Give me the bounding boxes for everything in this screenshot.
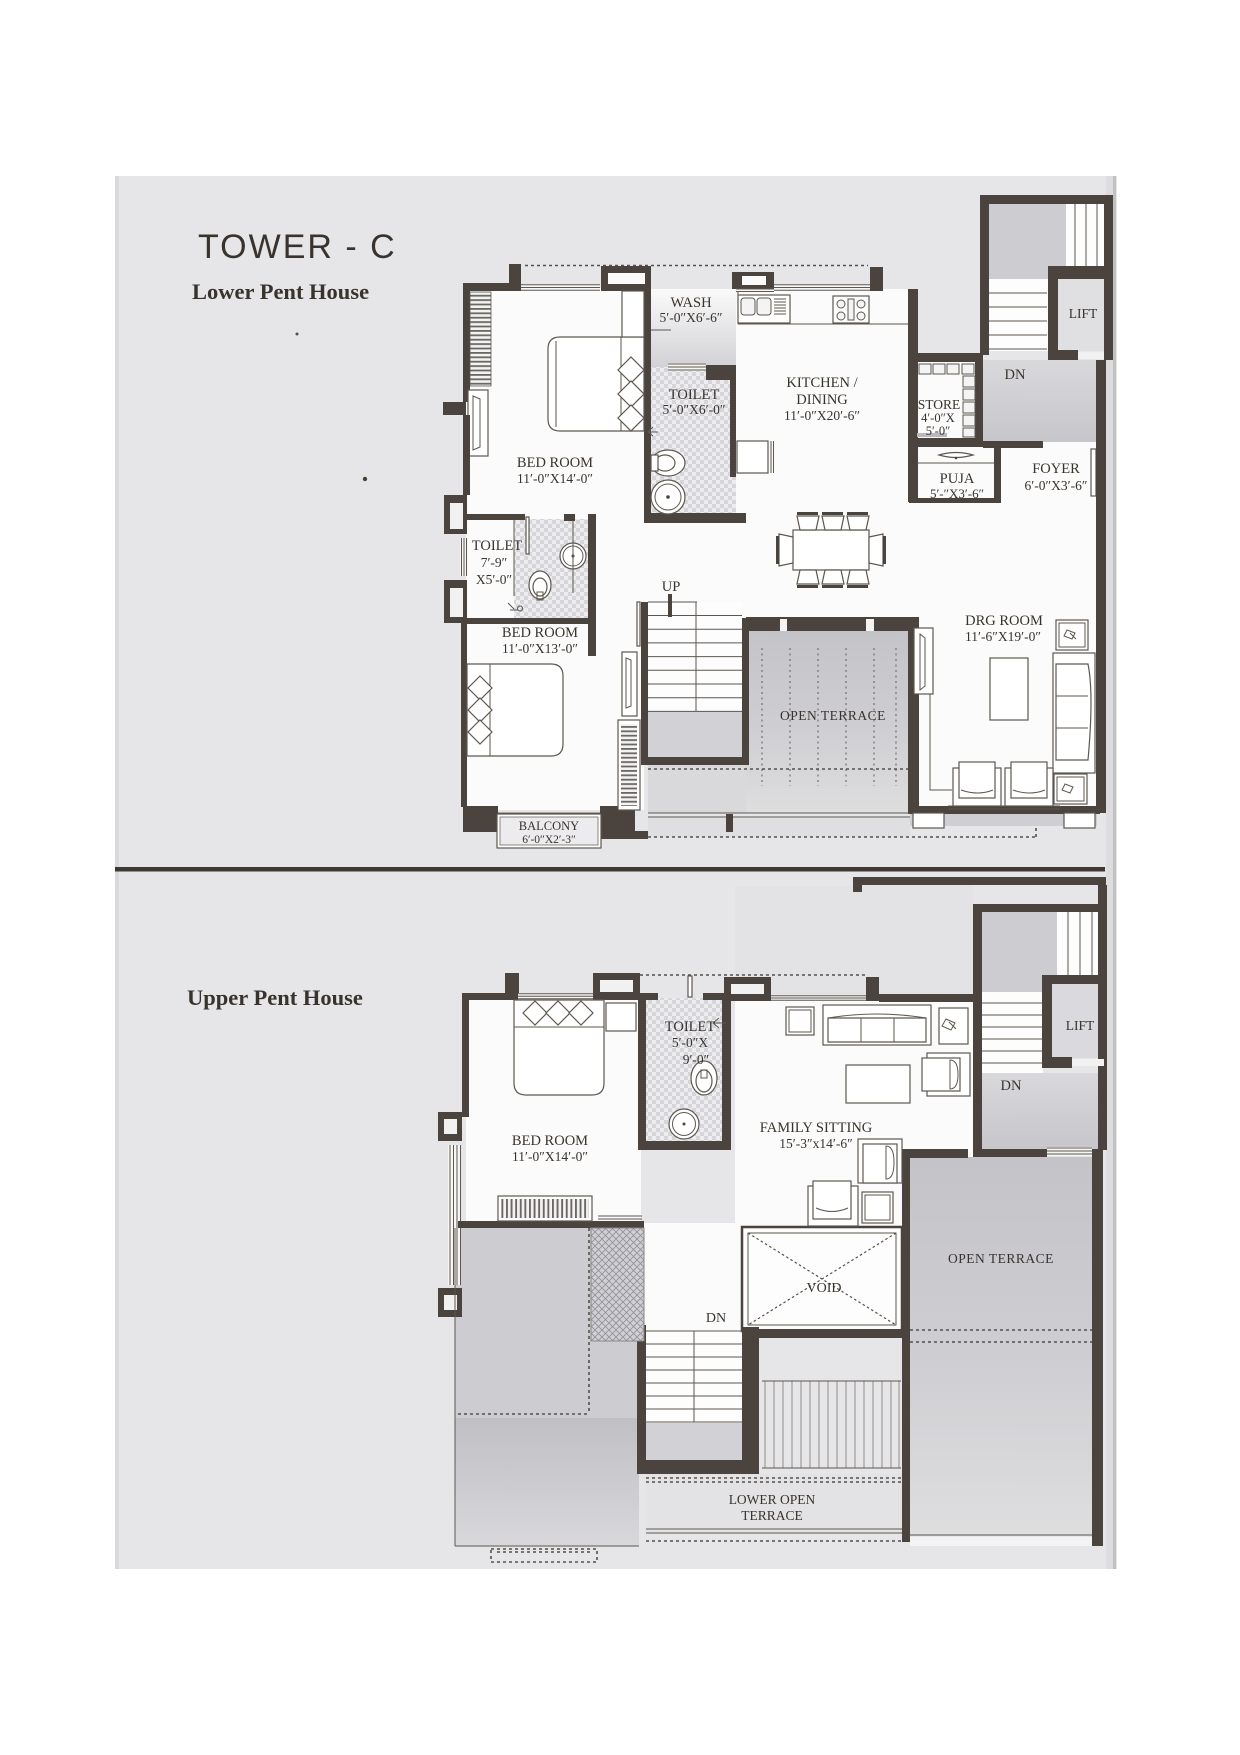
svg-text:STORE: STORE (918, 397, 961, 412)
svg-text:TOILET: TOILET (665, 1019, 716, 1035)
svg-text:BED ROOM: BED ROOM (512, 1133, 588, 1149)
svg-text:DRG ROOM: DRG ROOM (965, 613, 1043, 629)
svg-text:5′-0″: 5′-0″ (926, 424, 951, 438)
svg-text:VOID: VOID (807, 1281, 842, 1296)
svg-text:DN: DN (1005, 367, 1026, 383)
svg-text:5′-″X3′-6″: 5′-″X3′-6″ (930, 486, 984, 501)
svg-text:15′-3″x14′-6″: 15′-3″x14′-6″ (779, 1136, 852, 1151)
svg-text:11′-6″X19′-0″: 11′-6″X19′-0″ (965, 629, 1041, 644)
svg-text:6′-0″X3′-6″: 6′-0″X3′-6″ (1025, 478, 1088, 493)
svg-text:TERRACE: TERRACE (741, 1508, 803, 1523)
svg-text:LIFT: LIFT (1066, 1018, 1095, 1033)
svg-text:BED ROOM: BED ROOM (517, 455, 593, 471)
svg-text:BED ROOM: BED ROOM (502, 625, 578, 641)
svg-text:4′-0″X: 4′-0″X (921, 411, 955, 425)
svg-text:11′-0″X20′-6″: 11′-0″X20′-6″ (784, 408, 860, 423)
svg-text:FAMILY SITTING: FAMILY SITTING (760, 1120, 873, 1136)
svg-text:DN: DN (706, 1311, 726, 1326)
svg-text:LOWER OPEN: LOWER OPEN (729, 1492, 816, 1507)
svg-text:UP: UP (662, 579, 681, 595)
svg-text:OPEN TERRACE: OPEN TERRACE (780, 708, 886, 723)
svg-text:5′-0″X6′-6″: 5′-0″X6′-6″ (660, 310, 723, 325)
svg-text:11′-0″X14′-0″: 11′-0″X14′-0″ (512, 1149, 588, 1164)
svg-text:PUJA: PUJA (940, 471, 975, 487)
svg-text:Lower Pent House: Lower Pent House (192, 279, 369, 304)
svg-text:9′-0″: 9′-0″ (683, 1052, 710, 1067)
svg-text:TOILET: TOILET (669, 387, 720, 403)
svg-text:5′-0″X6′-0″: 5′-0″X6′-0″ (663, 402, 726, 417)
svg-text:6′-0″X2′-3″: 6′-0″X2′-3″ (522, 834, 576, 846)
svg-text:BALCONY: BALCONY (519, 819, 579, 833)
svg-text:5′-0″X: 5′-0″X (672, 1035, 709, 1050)
svg-text:KITCHEN /: KITCHEN / (786, 375, 858, 391)
svg-text:Upper Pent House: Upper Pent House (187, 985, 363, 1010)
svg-text:TOWER - C: TOWER - C (198, 228, 397, 266)
svg-text:X5′-0″: X5′-0″ (476, 572, 512, 587)
svg-text:OPEN TERRACE: OPEN TERRACE (948, 1251, 1054, 1266)
svg-text:11′-0″X13′-0″: 11′-0″X13′-0″ (502, 641, 578, 656)
svg-text:7′-9″: 7′-9″ (481, 555, 508, 570)
svg-text:11′-0″X14′-0″: 11′-0″X14′-0″ (517, 471, 593, 486)
svg-text:LIFT: LIFT (1069, 306, 1098, 321)
svg-text:TOILET: TOILET (472, 538, 523, 554)
svg-text:DINING: DINING (796, 392, 848, 408)
svg-text:WASH: WASH (670, 295, 712, 311)
svg-text:FOYER: FOYER (1032, 461, 1080, 477)
svg-text:DN: DN (1001, 1078, 1022, 1094)
